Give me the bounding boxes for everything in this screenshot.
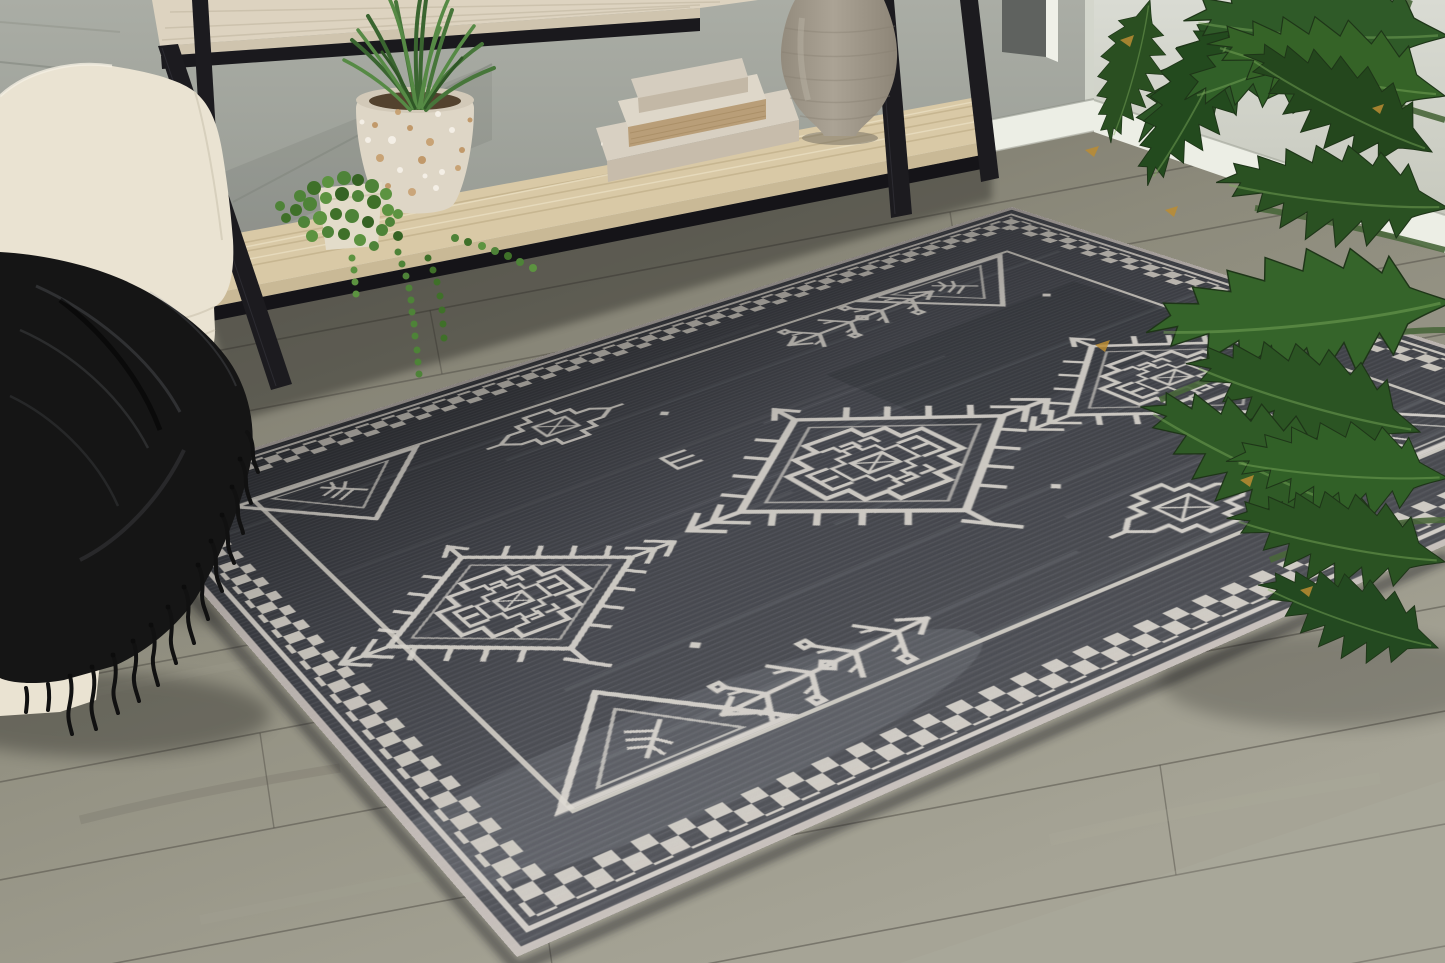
living-room-photo <box>0 0 1445 963</box>
philodendron-plant <box>0 0 1445 963</box>
plant-leaves <box>1080 0 1445 687</box>
